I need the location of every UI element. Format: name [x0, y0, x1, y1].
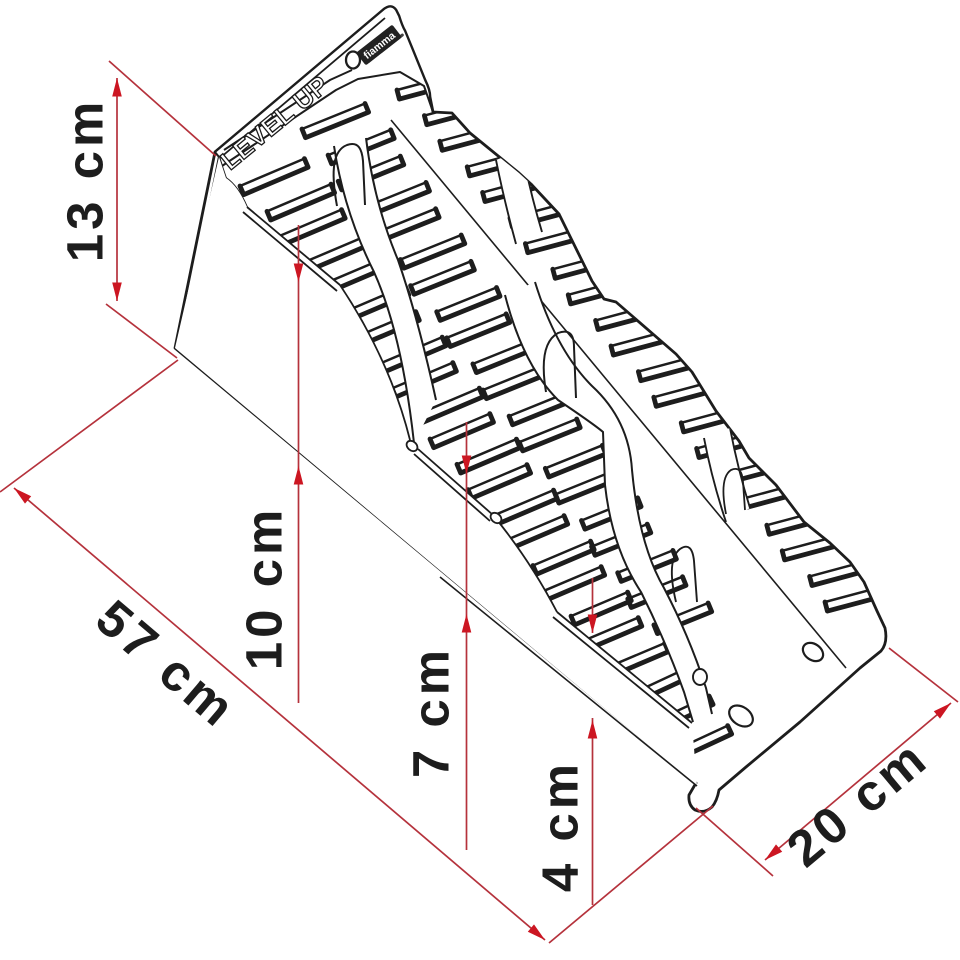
svg-text:13 cm: 13 cm — [56, 98, 113, 263]
svg-text:4 cm: 4 cm — [531, 760, 588, 892]
svg-text:7 cm: 7 cm — [402, 646, 459, 778]
svg-text:10 cm: 10 cm — [235, 506, 292, 671]
